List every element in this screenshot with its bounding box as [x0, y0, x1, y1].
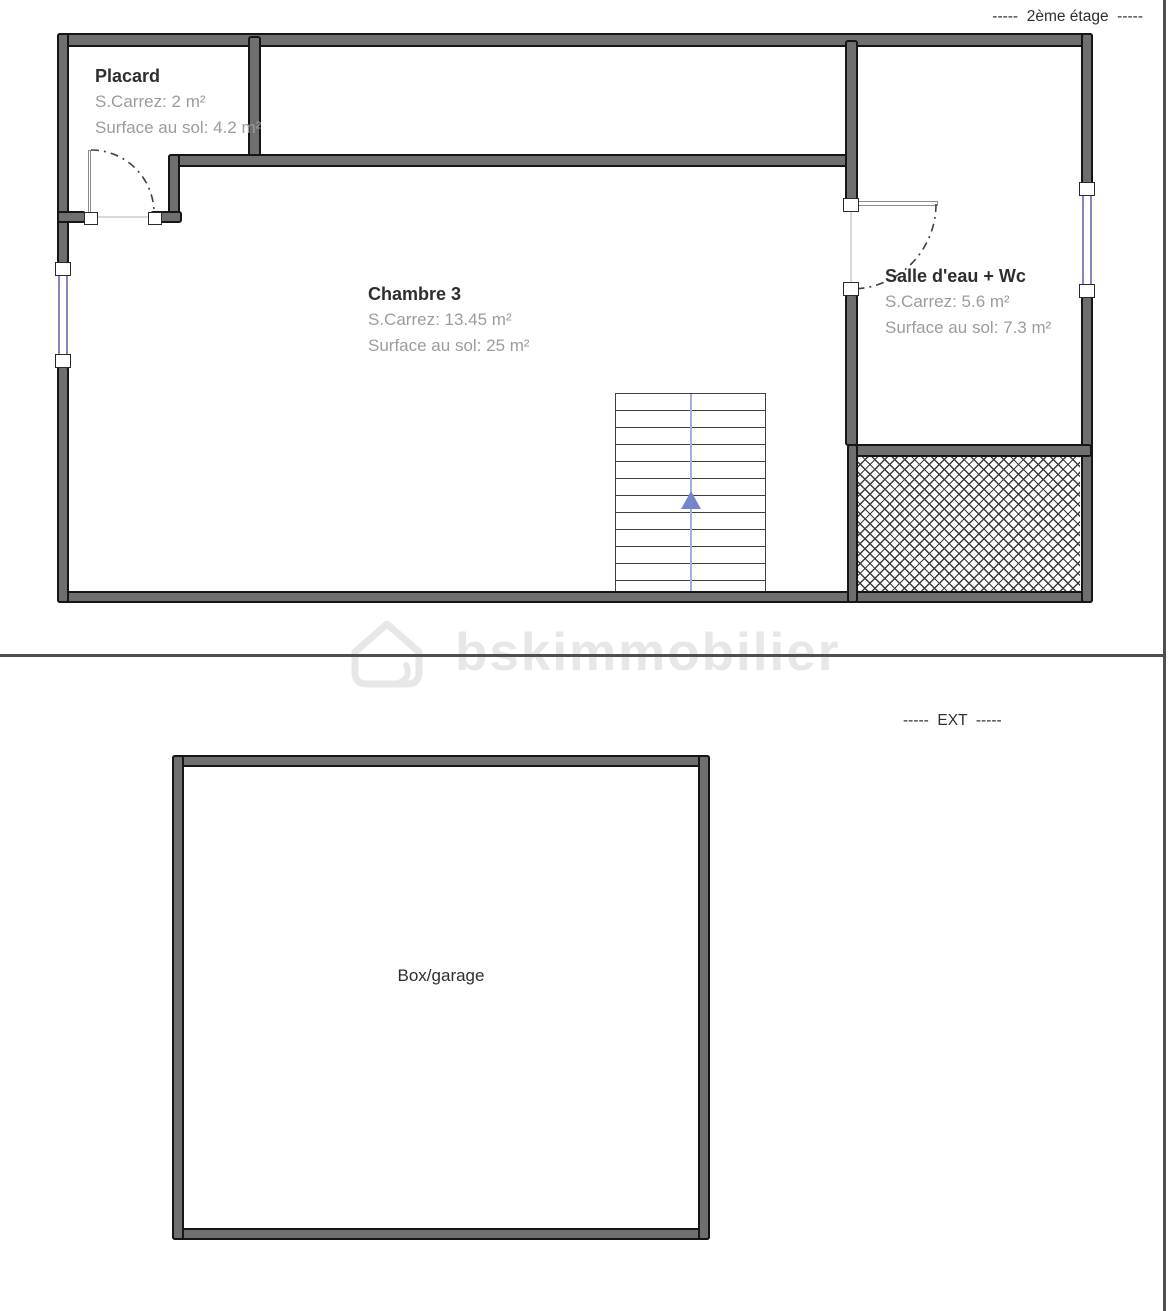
box-wall-bottom — [172, 1228, 710, 1240]
placard-door-threshold — [98, 216, 148, 218]
floor-plan-page: bskimmobilier ----- 2ème étage ----- — [0, 0, 1170, 1311]
wall-hatch-left — [847, 444, 858, 603]
bathroom-door-leaf — [857, 201, 938, 206]
box-wall-left — [172, 755, 184, 1240]
box-garage-name: Box/garage — [172, 966, 710, 986]
ext-title: ----- EXT ----- — [903, 712, 1002, 730]
wall-outer-bottom — [57, 591, 1093, 603]
placard-door-cap-left — [84, 212, 98, 225]
salle-eau-carrez: S.Carrez: 5.6 m² — [885, 289, 1051, 315]
hatched-void-area — [858, 455, 1080, 592]
salle-eau-surface: Surface au sol: 7.3 m² — [885, 315, 1051, 341]
watermark-house-logo-icon — [341, 612, 433, 694]
left-window-cap-top — [55, 262, 71, 276]
watermark-text: bskimmobilier — [455, 612, 840, 694]
box-wall-right — [698, 755, 710, 1240]
placard-carrez: S.Carrez: 2 m² — [95, 89, 261, 115]
chambre3-name: Chambre 3 — [368, 281, 530, 307]
wall-outer-right-upper — [1081, 33, 1093, 185]
chambre3-carrez: S.Carrez: 13.45 m² — [368, 307, 530, 333]
floor-title: ----- 2ème étage ----- — [992, 8, 1143, 26]
wall-corridor-horizontal — [168, 154, 852, 167]
placard-name: Placard — [95, 63, 261, 89]
section-divider-line — [0, 654, 1166, 657]
wall-hatch-top — [847, 444, 1092, 457]
chambre3-label: Chambre 3 S.Carrez: 13.45 m² Surface au … — [368, 281, 530, 359]
left-window-cap-bottom — [55, 354, 71, 368]
staircase-up-arrow-icon — [681, 491, 701, 509]
chambre3-surface: Surface au sol: 25 m² — [368, 333, 530, 359]
wall-placard-door-jamb-left — [57, 211, 86, 223]
right-window-glass — [1082, 196, 1092, 284]
salle-eau-label: Salle d'eau + Wc S.Carrez: 5.6 m² Surfac… — [885, 263, 1051, 341]
left-window-glass — [58, 276, 68, 354]
placard-door-arc — [91, 150, 154, 213]
box-wall-top — [172, 755, 710, 767]
placard-label: Placard S.Carrez: 2 m² Surface au sol: 4… — [95, 63, 261, 141]
placard-door-leaf — [88, 150, 91, 213]
placard-surface: Surface au sol: 4.2 m² — [95, 115, 261, 141]
watermark: bskimmobilier — [341, 612, 840, 694]
right-window-cap-top — [1079, 182, 1095, 196]
bathroom-door-cap-bottom — [843, 282, 859, 296]
staircase — [615, 393, 766, 599]
page-right-border — [1163, 0, 1166, 1311]
bathroom-door-threshold — [850, 212, 852, 282]
wall-bathroom-left-lower — [845, 294, 858, 446]
bathroom-door-cap-top — [843, 198, 859, 212]
placard-door-cap-right — [148, 212, 162, 225]
salle-eau-name: Salle d'eau + Wc — [885, 263, 1051, 289]
wall-outer-left-lower — [57, 366, 69, 603]
wall-outer-top — [57, 33, 1093, 47]
wall-bathroom-left-upper — [845, 40, 858, 202]
right-window-cap-bottom — [1079, 284, 1095, 298]
wall-outer-left-upper — [57, 33, 69, 264]
